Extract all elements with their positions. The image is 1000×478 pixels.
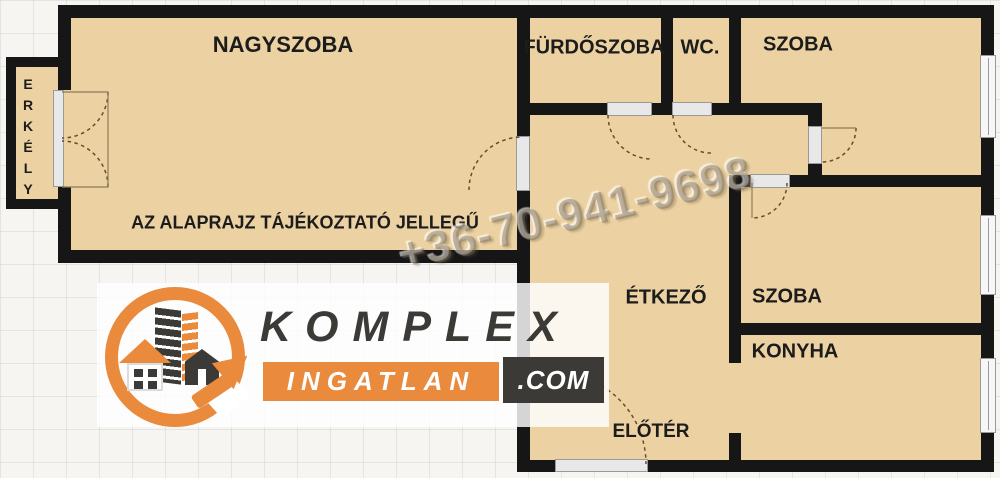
logo-house-window-icon: [134, 369, 143, 377]
door-sill-wc: [672, 102, 712, 116]
wall-segment: [58, 5, 71, 90]
wall-segment: [530, 103, 607, 115]
logo-brand-text: KOMPLEX: [260, 303, 606, 351]
wall-segment: [648, 460, 994, 472]
floorplan-canvas: NAGYSZOBA ERKÉLY FÜRDŐSZOBA WC. SZOBA ÉT…: [0, 0, 1000, 478]
wall-segment: [808, 164, 822, 175]
wall-segment: [711, 103, 822, 115]
logo-tld-text: .COM: [503, 357, 604, 403]
door-sill-szoba-felso: [808, 126, 822, 164]
wall-segment-balcony: [6, 57, 58, 67]
wall-segment: [729, 5, 741, 115]
door-sill-furdoszoba: [607, 102, 652, 116]
logo-house-icon: [127, 363, 163, 391]
wall-segment: [981, 295, 994, 358]
wall-segment: [981, 5, 994, 55]
agency-logo: KOMPLEX INGATLAN .COM: [97, 283, 609, 427]
logo-house2-door-icon: [198, 369, 206, 385]
wall-segment: [517, 5, 530, 137]
logo-house-roof-icon: [119, 339, 171, 363]
window-szoba-felso: [980, 55, 996, 138]
door-sill-balcony: [53, 90, 64, 187]
wall-segment: [981, 138, 994, 215]
wall-segment-balcony: [6, 57, 16, 209]
wall-segment: [661, 5, 673, 115]
room-label-konyha: KONYHA: [752, 341, 839, 364]
logo-product-text: INGATLAN: [263, 362, 499, 401]
window-konyha: [980, 358, 996, 433]
window-szoba-also: [980, 215, 996, 295]
room-label-szoba-also: SZOBA: [752, 286, 822, 309]
wall-segment: [808, 115, 822, 126]
wall-segment: [790, 175, 994, 187]
wall-segment: [729, 323, 994, 335]
wall-segment: [729, 335, 741, 363]
room-label-furdoszoba: FÜRDŐSZOBA: [523, 37, 664, 60]
wall-segment: [517, 460, 555, 472]
door-sill-nagyszoba: [516, 136, 530, 191]
wall-segment: [652, 103, 672, 115]
room-label-nagyszoba: NAGYSZOBA: [213, 32, 354, 58]
room-label-erkely: ERKÉLY: [20, 76, 36, 202]
door-sill-entry: [555, 459, 648, 472]
room-label-eloter: ELŐTÉR: [612, 421, 689, 443]
room-label-szoba-felso: SZOBA: [763, 34, 833, 57]
room-label-wc: WC.: [681, 37, 720, 60]
room-label-etkezo: ÉTKEZŐ: [625, 287, 706, 310]
wall-segment: [981, 433, 994, 472]
